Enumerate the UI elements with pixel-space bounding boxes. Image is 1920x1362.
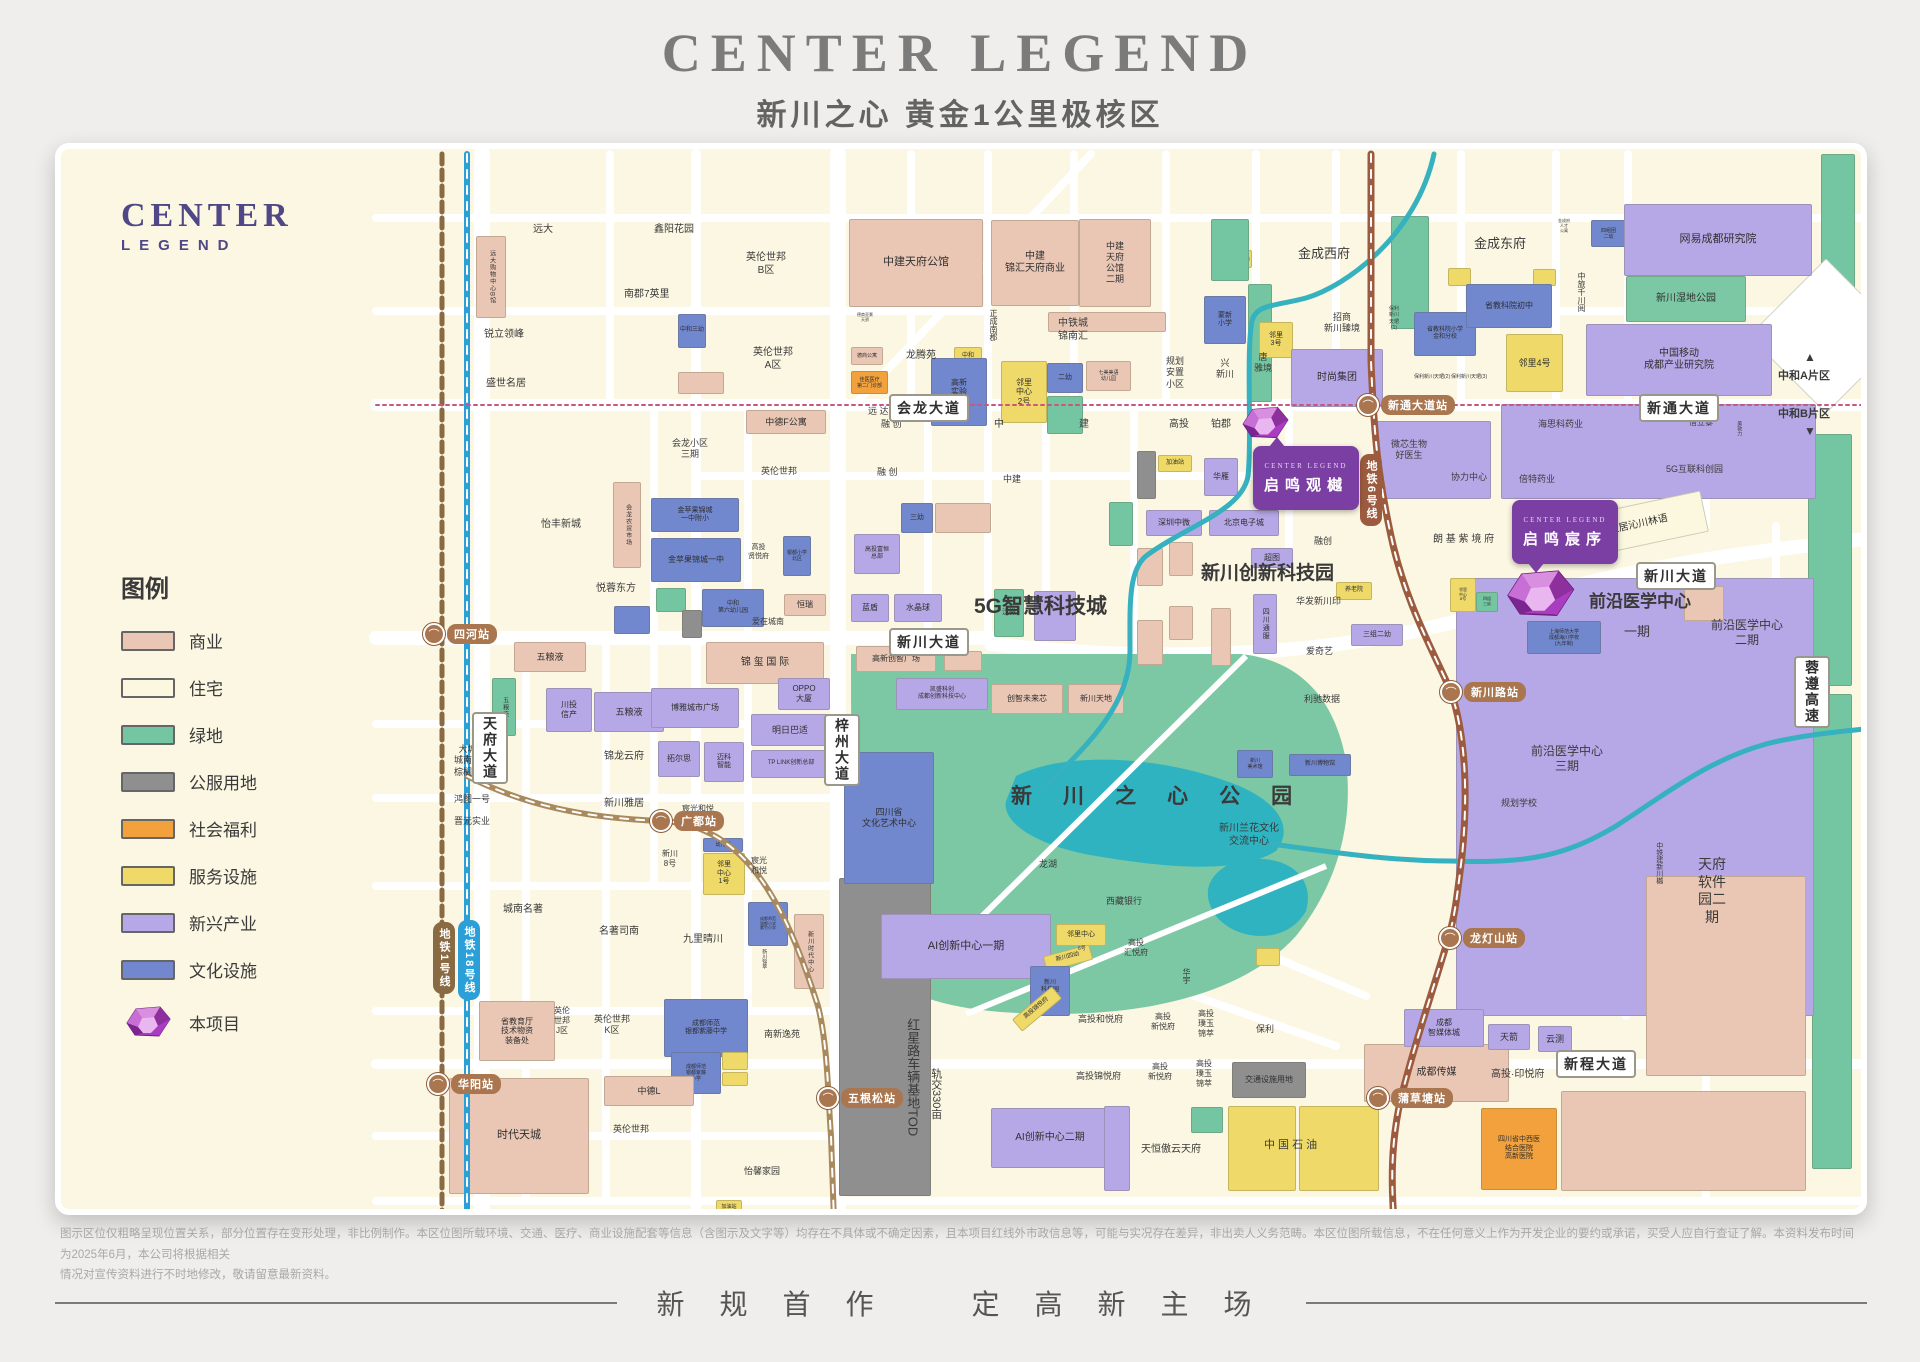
map-label: 新 川 之 心 公 园 [1011, 784, 1305, 810]
map-label: 新川锦萃 [761, 949, 767, 969]
map-label: 规划 安置 小区 [1166, 356, 1184, 390]
legend-item: 新兴产业 [121, 910, 257, 935]
road-name-label: 新通大道 [1639, 394, 1719, 422]
map-label: 中铁城 锦南汇 [1058, 318, 1088, 343]
legend-item: 社会福利 [121, 816, 257, 841]
legend-item: 本项目 [121, 1004, 257, 1040]
legend-heading: 图例 [121, 569, 257, 604]
map-label: 中旅千川阅 [1576, 272, 1586, 312]
map-label: 轨交330亩 [928, 1068, 942, 1119]
map-label: 晋元实业 [454, 816, 490, 827]
map-label: 招商 新川臻境 [1324, 312, 1360, 335]
map-label: 名著司南 [599, 926, 639, 939]
metro-station-icon: ⌒ [817, 1087, 839, 1109]
map-label: 融创 [1314, 536, 1332, 547]
map-label: 天府 软件 园二 期 [1698, 856, 1726, 926]
metro-station-icon: ⌒ [1357, 394, 1379, 416]
map-label: 鑫阳花园 [654, 224, 694, 237]
map-label: 倍特药业 [1519, 474, 1555, 485]
metro-station-icon: ⌒ [1440, 681, 1462, 703]
map-label: 新川 8号 [662, 849, 678, 869]
legend-label: 商业 [189, 628, 223, 653]
project-gem-icon [1239, 404, 1291, 442]
legend-swatch [121, 772, 175, 792]
road-name-label: 新程大道 [1556, 1050, 1636, 1078]
map-label: 锐立领峰 [484, 329, 524, 342]
legend-item: 住宅 [121, 675, 257, 700]
legend-label: 本项目 [189, 1010, 240, 1035]
road-name-label: 天府大道 [472, 712, 508, 784]
legend-label: 社会福利 [189, 816, 257, 841]
map-label: 红星路车辆基地TOD [904, 1018, 920, 1136]
map-label: 高投 新悦府 [1151, 1012, 1175, 1032]
brand-logo-line1: CENTER [121, 197, 293, 235]
map-label: 龙湖 [1039, 859, 1057, 870]
map-label: 高投 璞玉 锦萃 [1198, 1009, 1214, 1039]
map-label: 会龙小区 三期 [672, 438, 708, 461]
project-brand: CENTER LEGEND [1265, 462, 1348, 470]
map-label: 6号 [1078, 946, 1086, 952]
disclaimer-line1: 图示区位仅粗略呈现位置关系，部分位置存在变形处理，非比例制作。本区位图所载环境、… [60, 1224, 1860, 1265]
metro-station-icon: ⌒ [1439, 927, 1461, 949]
map-label: 龙腾苑 [906, 350, 936, 363]
map-label: 中和A片区 [1778, 370, 1830, 384]
slogan-rule-left [55, 1302, 617, 1304]
legend-label: 公服用地 [189, 769, 257, 794]
map-label: 宸光 和悦 [751, 856, 767, 876]
legend-swatch [121, 960, 175, 980]
legend-swatch [121, 819, 175, 839]
map-label: 融 创 [877, 467, 898, 478]
map-label: 德商亚景 天骄 [857, 312, 873, 322]
project-gem-icon [1502, 566, 1578, 622]
map-label: 朗 基 紫 境 府 [1433, 534, 1494, 547]
metro-station-icon: ⌒ [427, 1073, 449, 1095]
road-name-label: 梓州大道 [824, 714, 860, 786]
map-label: 保利 新川 天珺 (1) [1389, 306, 1399, 331]
map-label: 新川兰花文化 交流中心 [1219, 823, 1279, 848]
metro-line-label: 地铁1号线 [433, 922, 455, 994]
legend-swatch [121, 631, 175, 651]
map-label: 怡馨家园 [744, 1166, 780, 1177]
legend-label: 服务设施 [189, 863, 257, 888]
metro-station-label: 蒲草塘站 [1391, 1088, 1453, 1108]
page-subtitle: 新川之心 黄金1公里极核区 [0, 90, 1920, 134]
map-label: 中建 [1003, 474, 1021, 485]
map-label: 中 国 石 油 [1264, 1139, 1317, 1153]
map-label: 英伦 世邦 J区 [554, 1006, 570, 1036]
map-label: 爱奇艺 [1306, 646, 1333, 657]
legend-item: 服务设施 [121, 863, 257, 888]
map-label: 海思科药业 [1538, 419, 1583, 430]
map-label: 前沿医学中心 [1589, 591, 1691, 612]
road-name-label: 会龙大道 [889, 394, 969, 422]
map-label: 5G智慧科技城 [974, 594, 1107, 620]
map-label: 悦蓉东方 [596, 583, 636, 596]
map-label: 高投锦悦府 [1076, 1071, 1121, 1082]
brand-logo-line2: LEGEND [121, 237, 293, 254]
page-header: CENTER LEGEND 新川之心 黄金1公里极核区 [0, 22, 1920, 134]
project-callout: CENTER LEGEND启鸣宸序 [1512, 500, 1618, 564]
map-label: 高投 新悦府 [1148, 1062, 1172, 1082]
map-label: 英伦世邦 K区 [594, 1014, 630, 1037]
map-label: 利驰数据 [1304, 694, 1340, 705]
map-label: 远 达 [868, 406, 889, 417]
map-label: 鸿图一号 [454, 794, 490, 805]
map-label: 中和B片区 [1778, 408, 1830, 422]
metro-station-icon: ⌒ [1367, 1087, 1389, 1109]
legend-swatch [121, 866, 175, 886]
legend-item: 文化设施 [121, 957, 257, 982]
metro-station-label: 新川路站 [1464, 682, 1526, 702]
legend-swatch [121, 913, 175, 933]
map-label: 前沿医学中心 二期 [1711, 618, 1783, 648]
map-label: 英伦世邦 A区 [753, 347, 793, 372]
map-label: 远大 [533, 224, 553, 237]
map-label: 怡丰新城 [541, 519, 581, 532]
map-label: 保利新川天珺(3) [1451, 374, 1487, 380]
map-label: 新川创新科技园 [1201, 562, 1334, 586]
map-label: 高投·印悦府 [1491, 1069, 1544, 1082]
slogan-row: 新 规 首 作 定 高 新 主 场 [55, 1283, 1867, 1323]
map-label: 中铁建新川樾 [1654, 842, 1663, 884]
map-label: 锦龙云府 [604, 751, 644, 764]
legend-label: 住宅 [189, 675, 223, 700]
metro-station-label: 新通大道站 [1381, 395, 1455, 415]
map-legend: 图例 商业住宅绿地公服用地社会福利服务设施新兴产业文化设施本项目 [121, 569, 257, 1062]
map-label: 建 [1079, 419, 1089, 432]
map-label: 中 [994, 419, 1004, 432]
map-label: 高投 汇悦府 [1124, 938, 1148, 958]
legend-swatch [121, 725, 175, 745]
metro-station-label: 四河站 [447, 624, 497, 644]
legend-swatch [121, 678, 175, 698]
legend-label: 新兴产业 [189, 910, 257, 935]
map-label: 南新逸苑 [764, 1029, 800, 1040]
metro-line-label: 地铁6号线 [1360, 454, 1382, 526]
map-label: 一期 [1624, 624, 1650, 640]
map-label: 高投和悦府 [1078, 1014, 1123, 1025]
disclaimer: 图示区位仅粗略呈现位置关系，部分位置存在变形处理，非比例制作。本区位图所载环境、… [60, 1224, 1860, 1286]
map-label: 美敦力 [1736, 421, 1742, 436]
road-name-label: 新川大道 [889, 628, 969, 656]
slogan-rule-right [1306, 1302, 1868, 1304]
project-callout: CENTER LEGEND启鸣观樾 [1253, 446, 1359, 510]
map-label: 前沿医学中心 三期 [1531, 744, 1603, 774]
map-label: 西藏银行 [1106, 896, 1142, 907]
metro-station-icon: ⌒ [423, 623, 445, 645]
slogan-text: 新 规 首 作 定 高 新 主 场 [617, 1283, 1306, 1323]
map-label: 天恒傲云天府 [1141, 1144, 1201, 1157]
legend-item: 公服用地 [121, 769, 257, 794]
map-label: 高投 璞玉 锦萃 [1196, 1059, 1212, 1089]
map-labels-layer: 远大鑫阳花园南郡7英里锐立领峰盛世名居英伦世邦 B区英伦世邦 A区会龙小区 三期… [61, 149, 1861, 1209]
map-label: 爱在城南 [752, 617, 784, 627]
project-name: 启鸣宸序 [1523, 528, 1607, 549]
page-title: CENTER LEGEND [0, 22, 1920, 84]
map-label: 高投 [1169, 419, 1189, 432]
map-label: 铂郡 [1211, 419, 1231, 432]
road-name-label: 新川大道 [1636, 562, 1716, 590]
map-label: 保利 [1256, 1024, 1274, 1035]
map-label: ▼ [1804, 424, 1816, 439]
map-label: 协力中心 [1451, 472, 1487, 483]
map-label: 5G互联科创园 [1666, 464, 1723, 475]
map-label: 南郡7英里 [624, 289, 670, 302]
brand-logo: CENTER LEGEND [121, 197, 293, 254]
legend-label: 文化设施 [189, 957, 257, 982]
map-label: 兴 新川 [1216, 358, 1234, 381]
legend-label: 绿地 [189, 722, 223, 747]
metro-station-label: 五根松站 [841, 1088, 903, 1108]
map-label: 华宇 [1181, 968, 1191, 984]
map-label: 九里晴川 [683, 934, 723, 947]
map-label: 规划学校 [1501, 798, 1537, 809]
map-label: 正成南郡 [988, 309, 998, 341]
metro-station-label: 广都站 [674, 811, 724, 831]
map-card: 远大购物中心B馆中和三幼中德F公寓德商公寓佳医医疗 第二门诊部中建天府公馆中建 … [55, 143, 1867, 1215]
map-label: 城南名著 [503, 904, 543, 917]
legend-gem-icon [121, 1004, 175, 1040]
page: CENTER LEGEND 新川之心 黄金1公里极核区 [0, 0, 1920, 1362]
map-label: 新川雅居 [604, 798, 644, 811]
map-label: 英伦世邦 [613, 1124, 649, 1135]
metro-station-label: 华阳站 [451, 1074, 501, 1094]
map-label: 华发新川印 [1296, 596, 1341, 607]
map-label: 保利新川天珺(2) [1414, 374, 1450, 380]
project-name: 启鸣观樾 [1264, 474, 1348, 495]
map-label: 英伦世邦 [761, 466, 797, 477]
metro-station-icon: ⌒ [650, 810, 672, 832]
map-label: 金成东府 [1474, 236, 1526, 252]
road-name-label: 蓉遵高速 [1794, 656, 1830, 728]
map-label: 唐 雅境 [1254, 352, 1272, 375]
map-label: 高投 贤悦府 [748, 544, 769, 562]
map-label: 金成西府 [1298, 246, 1350, 262]
project-brand: CENTER LEGEND [1524, 516, 1607, 524]
metro-line-label: 地铁18号线 [458, 920, 480, 1000]
map-label: ▲ [1804, 350, 1816, 365]
map-label: 英伦世邦 B区 [746, 252, 786, 277]
map-label: 金成府 人才 公寓 [1558, 218, 1570, 233]
legend-item: 绿地 [121, 722, 257, 747]
map-label: 微芯生物 好医生 [1391, 439, 1427, 462]
metro-station-label: 龙灯山站 [1463, 928, 1525, 948]
legend-item: 商业 [121, 628, 257, 653]
map-label: 盛世名居 [486, 378, 526, 391]
